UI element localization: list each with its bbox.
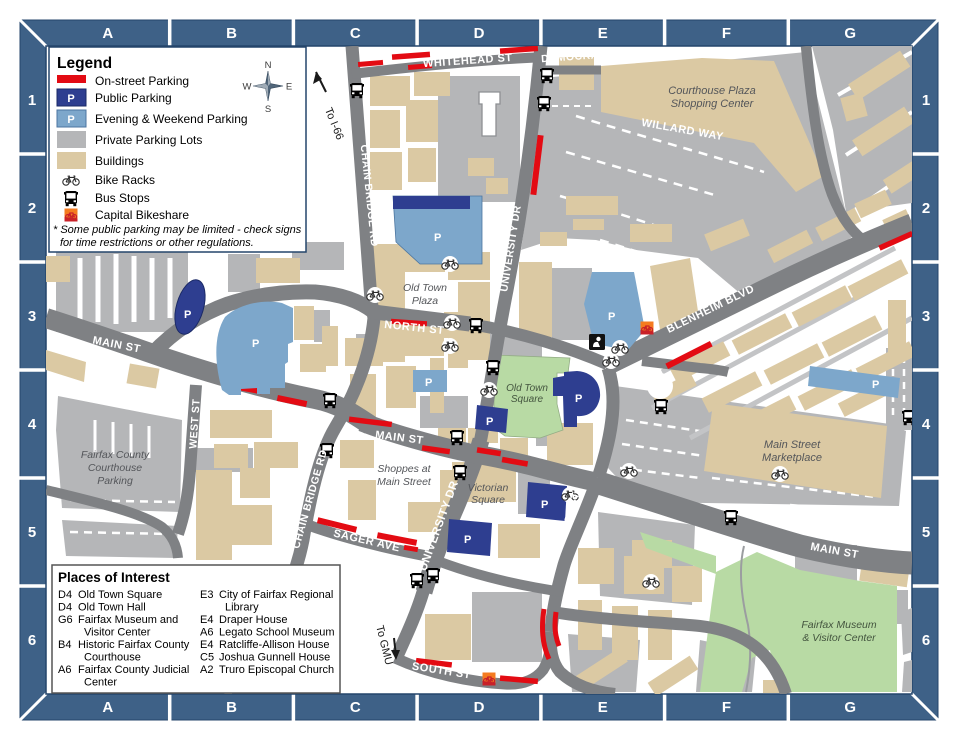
svg-text:W: W: [243, 82, 252, 93]
svg-text:5: 5: [28, 524, 36, 541]
svg-text:Main Street: Main Street: [764, 439, 821, 451]
svg-text:P: P: [67, 93, 74, 105]
svg-text:A6: A6: [200, 627, 213, 639]
svg-text:Main Street: Main Street: [377, 476, 432, 488]
svg-text:P: P: [67, 114, 74, 126]
svg-text:Bike Racks: Bike Racks: [95, 173, 155, 187]
svg-text:C: C: [350, 699, 361, 716]
svg-text:B: B: [226, 699, 237, 716]
svg-text:Capital Bikeshare: Capital Bikeshare: [95, 208, 189, 222]
svg-text:Truro Episcopal Church: Truro Episcopal Church: [219, 664, 334, 676]
svg-text:P: P: [252, 338, 260, 350]
svg-text:F: F: [722, 25, 731, 42]
svg-text:E: E: [598, 25, 608, 42]
svg-text:Ratcliffe-Allison House: Ratcliffe-Allison House: [219, 639, 329, 651]
svg-text:Joshua Gunnell House: Joshua Gunnell House: [219, 652, 330, 664]
svg-text:E: E: [286, 82, 292, 93]
svg-text:Plaza: Plaza: [412, 295, 438, 307]
svg-text:Courthouse: Courthouse: [88, 462, 142, 474]
svg-text:for time restrictions or other: for time restrictions or other regulatio…: [60, 237, 254, 249]
svg-text:Shopping Center: Shopping Center: [671, 98, 755, 110]
svg-text:Private Parking Lots: Private Parking Lots: [95, 133, 202, 147]
svg-text:& Visitor Center: & Visitor Center: [802, 632, 876, 644]
svg-text:G6: G6: [58, 614, 73, 626]
svg-text:Library: Library: [225, 602, 259, 614]
svg-text:E4: E4: [200, 614, 213, 626]
svg-text:6: 6: [28, 632, 36, 649]
svg-text:D: D: [474, 25, 485, 42]
svg-text:1: 1: [922, 92, 930, 109]
svg-text:E4: E4: [200, 639, 213, 651]
svg-text:F: F: [722, 699, 731, 716]
svg-text:E: E: [598, 699, 608, 716]
svg-text:P: P: [486, 416, 494, 428]
svg-text:D4: D4: [58, 589, 72, 601]
svg-text:A2: A2: [200, 664, 213, 676]
svg-text:A: A: [102, 699, 113, 716]
svg-text:2: 2: [28, 200, 36, 217]
svg-text:Legend: Legend: [57, 55, 112, 72]
svg-text:P: P: [425, 377, 433, 389]
svg-text:3: 3: [28, 308, 36, 325]
svg-text:C: C: [350, 25, 361, 42]
svg-text:P: P: [608, 311, 616, 323]
svg-text:Square: Square: [471, 494, 505, 506]
svg-text:D4: D4: [58, 602, 72, 614]
svg-text:P: P: [872, 379, 880, 391]
svg-text:Old Town Square: Old Town Square: [78, 589, 162, 601]
svg-text:Public Parking: Public Parking: [95, 91, 172, 105]
svg-text:Places of Interest: Places of Interest: [58, 570, 170, 585]
svg-text:Bus Stops: Bus Stops: [95, 191, 150, 205]
svg-text:Square: Square: [511, 394, 544, 405]
svg-text:Legato School Museum: Legato School Museum: [219, 627, 335, 639]
svg-text:P: P: [575, 393, 583, 405]
svg-text:S: S: [265, 104, 271, 115]
svg-text:D: D: [474, 699, 485, 716]
svg-text:Old Town: Old Town: [403, 282, 447, 294]
svg-text:E3: E3: [200, 589, 213, 601]
svg-text:P: P: [184, 309, 192, 321]
svg-text:Courthouse Plaza: Courthouse Plaza: [668, 85, 755, 97]
svg-text:P: P: [541, 499, 549, 511]
svg-text:Fairfax Museum and: Fairfax Museum and: [78, 614, 178, 626]
svg-text:Center: Center: [84, 677, 117, 689]
svg-text:P: P: [434, 232, 442, 244]
svg-text:1: 1: [28, 92, 36, 109]
svg-text:C5: C5: [200, 652, 214, 664]
svg-text:* Some public parking may be l: * Some public parking may be limited - c…: [53, 224, 302, 236]
svg-text:4: 4: [28, 416, 37, 433]
svg-text:Victorian: Victorian: [468, 482, 509, 494]
svg-text:4: 4: [922, 416, 931, 433]
svg-text:P: P: [464, 534, 472, 546]
svg-text:Courthouse: Courthouse: [84, 652, 141, 664]
svg-text:Shoppes at: Shoppes at: [377, 463, 431, 475]
svg-text:City of Fairfax Regional: City of Fairfax Regional: [219, 589, 333, 601]
svg-text:Fairfax Museum: Fairfax Museum: [801, 619, 877, 631]
svg-text:Parking: Parking: [97, 475, 133, 487]
svg-text:B4: B4: [58, 639, 71, 651]
svg-text:Evening & Weekend Parking: Evening & Weekend Parking: [95, 112, 248, 126]
svg-text:N: N: [265, 60, 272, 71]
svg-text:Fairfax County: Fairfax County: [81, 449, 150, 461]
svg-text:Visitor Center: Visitor Center: [84, 627, 151, 639]
svg-text:5: 5: [922, 524, 930, 541]
svg-text:On-street Parking: On-street Parking: [95, 74, 189, 88]
svg-text:Old Town: Old Town: [506, 383, 548, 394]
svg-text:A6: A6: [58, 664, 71, 676]
svg-text:Historic Fairfax County: Historic Fairfax County: [78, 639, 190, 651]
svg-text:6: 6: [922, 632, 930, 649]
svg-text:3: 3: [922, 308, 930, 325]
svg-text:G: G: [844, 699, 856, 716]
svg-text:B: B: [226, 25, 237, 42]
svg-text:Fairfax County Judicial: Fairfax County Judicial: [78, 664, 189, 676]
svg-text:2: 2: [922, 200, 930, 217]
svg-text:Old Town Hall: Old Town Hall: [78, 602, 146, 614]
svg-text:Draper House: Draper House: [219, 614, 287, 626]
svg-text:G: G: [844, 25, 856, 42]
svg-text:A: A: [102, 25, 113, 42]
svg-text:Marketplace: Marketplace: [762, 452, 822, 464]
svg-text:Buildings: Buildings: [95, 154, 144, 168]
